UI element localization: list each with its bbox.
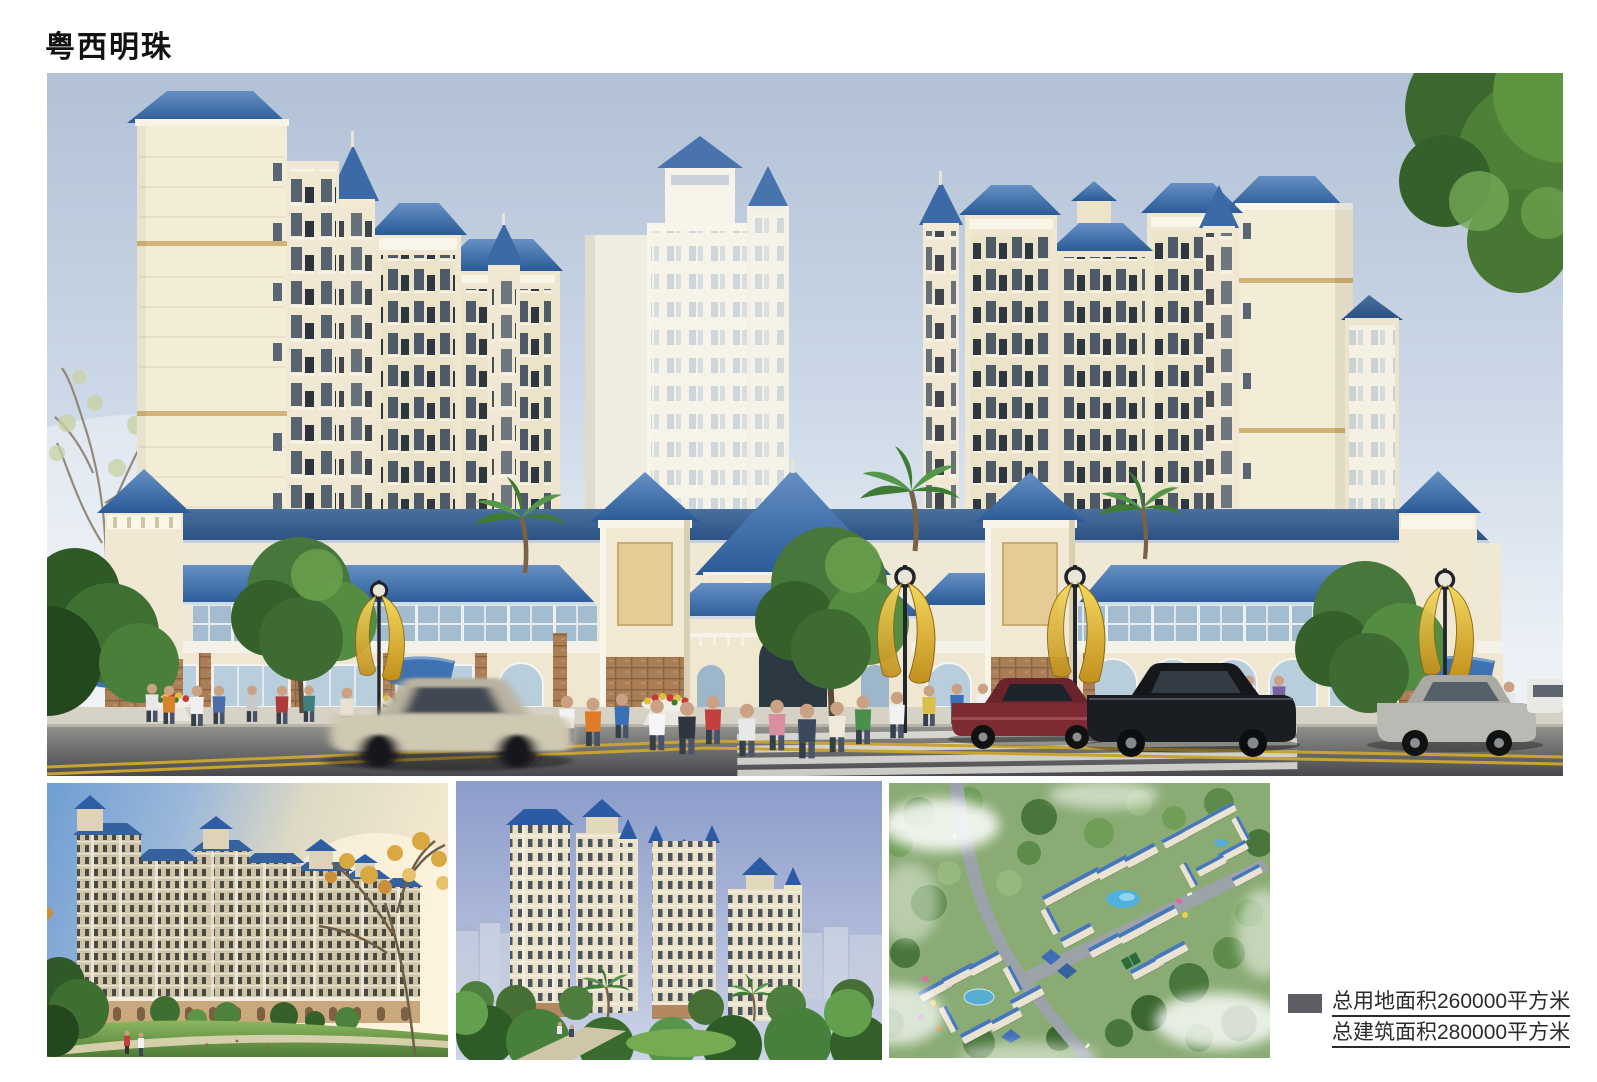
legend-bullet — [1288, 994, 1322, 1013]
page-title: 粤西明珠 — [45, 22, 173, 66]
site-area-text: 总用地面积260000平方米 — [1332, 990, 1570, 1017]
right-tower-cluster — [919, 171, 1403, 535]
thumbnail3-graphic — [889, 783, 1270, 1058]
main-rendering-graphic — [47, 73, 1563, 776]
thumbnail1-graphic — [47, 783, 448, 1057]
thumbnail-sunset-rendering — [47, 783, 448, 1057]
thumbnail-garden-rendering — [456, 781, 882, 1060]
legend-lines: 总用地面积260000平方米 总建筑面积280000平方米 — [1332, 990, 1570, 1052]
area-legend: 总用地面积260000平方米 总建筑面积280000平方米 — [1288, 990, 1570, 1052]
presentation-board: 粤西明珠 — [0, 0, 1597, 1082]
car-white-partial — [1527, 679, 1563, 713]
thumbnail2-graphic — [456, 781, 882, 1060]
thumbnail-aerial-masterplan — [889, 783, 1270, 1058]
main-street-rendering — [47, 73, 1563, 776]
floor-area-text: 总建筑面积280000平方米 — [1332, 1021, 1570, 1048]
